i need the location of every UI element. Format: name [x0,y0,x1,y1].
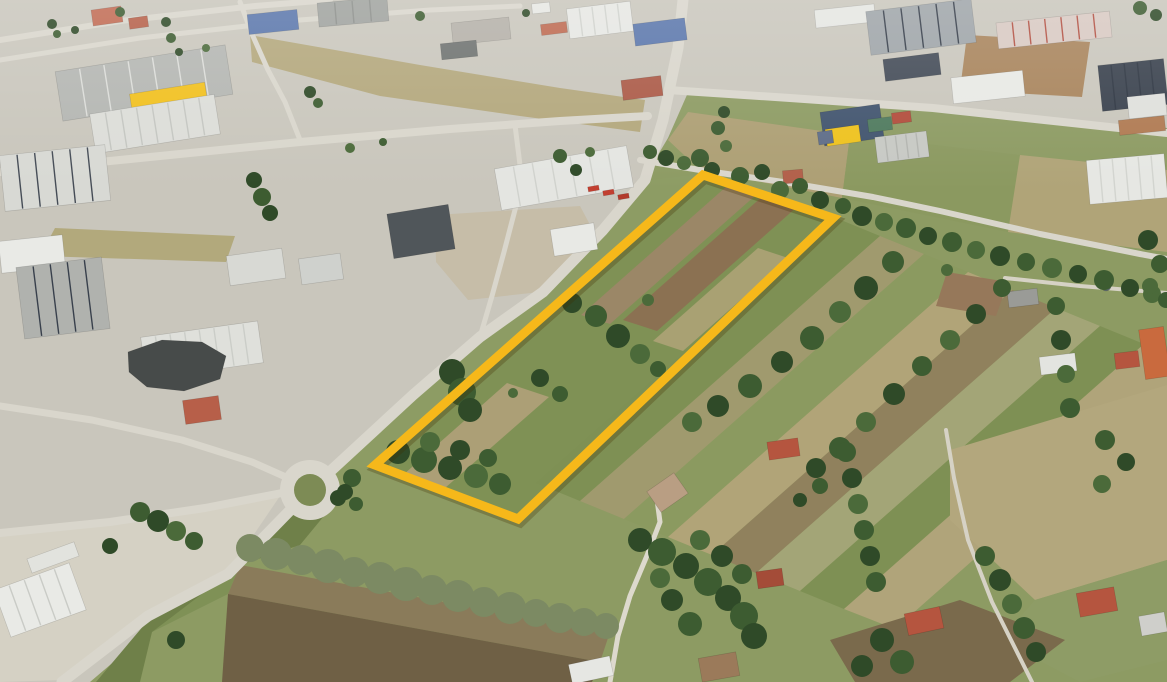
aerial-3d-map[interactable] [0,0,1167,682]
atmospheric-haze-overlay [0,0,1167,682]
screenshot-stage [0,0,1167,682]
